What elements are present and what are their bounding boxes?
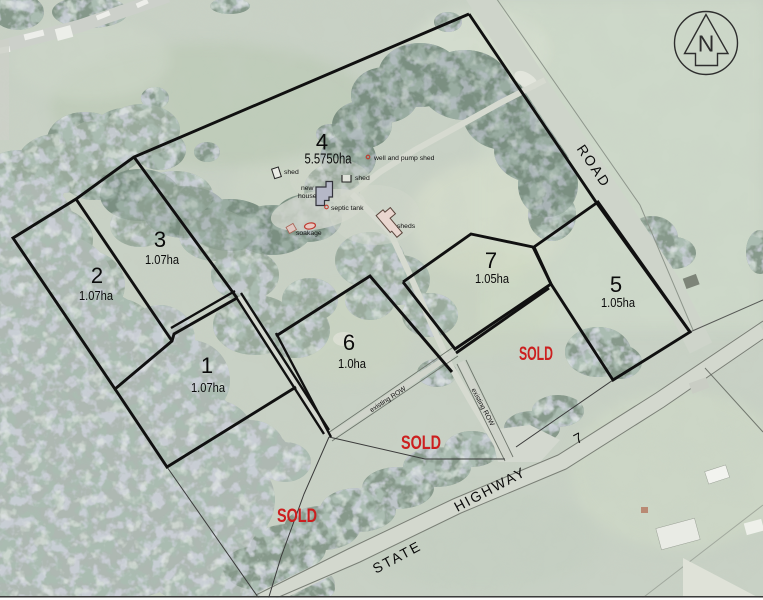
svg-text:1.05ha: 1.05ha <box>601 295 636 310</box>
svg-text:shed: shed <box>284 169 299 176</box>
svg-text:SOLD: SOLD <box>401 433 441 454</box>
svg-text:SOLD: SOLD <box>277 506 317 527</box>
svg-text:sheds: sheds <box>397 223 416 230</box>
svg-text:6: 6 <box>343 330 355 355</box>
svg-text:shed: shed <box>355 175 370 182</box>
svg-text:2: 2 <box>91 263 103 288</box>
svg-text:7: 7 <box>485 248 497 273</box>
svg-text:1.07ha: 1.07ha <box>79 288 114 303</box>
svg-text:5.5750ha: 5.5750ha <box>305 152 353 168</box>
svg-text:septic tank: septic tank <box>331 205 364 212</box>
svg-text:1.0ha: 1.0ha <box>338 356 367 371</box>
svg-text:1.07ha: 1.07ha <box>145 252 180 267</box>
svg-text:SOLD: SOLD <box>519 344 553 365</box>
svg-text:well and pump shed: well and pump shed <box>373 155 435 162</box>
svg-text:3: 3 <box>154 227 166 252</box>
svg-text:1.05ha: 1.05ha <box>475 271 510 286</box>
svg-text:new: new <box>301 185 314 192</box>
svg-text:soakage: soakage <box>296 230 322 237</box>
svg-text:5: 5 <box>610 272 622 297</box>
svg-text:N: N <box>698 31 715 57</box>
svg-text:house: house <box>298 193 317 200</box>
svg-text:1.07ha: 1.07ha <box>191 380 226 395</box>
svg-text:1: 1 <box>201 353 213 378</box>
